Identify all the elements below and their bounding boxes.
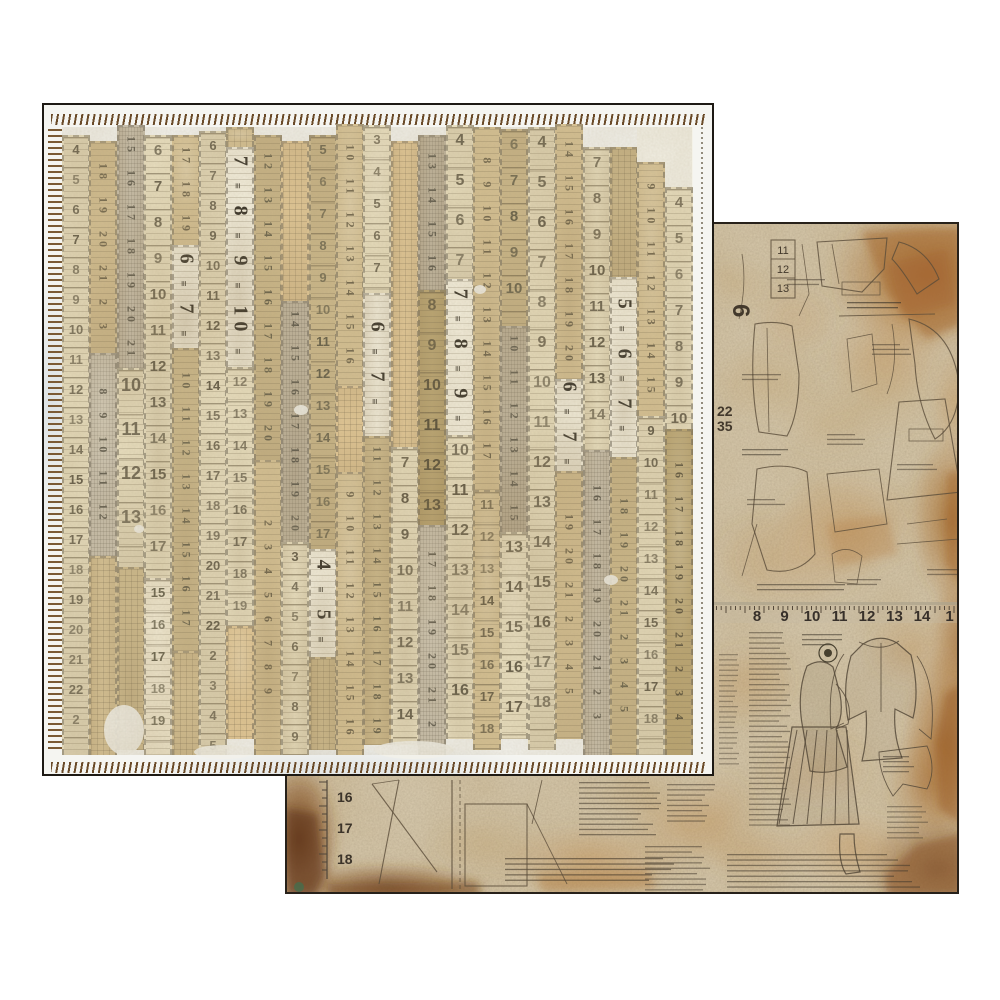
svg-text:11: 11 <box>777 245 788 257</box>
svg-text:6: 6 <box>727 304 754 317</box>
svg-text:11: 11 <box>832 608 848 625</box>
svg-text:18: 18 <box>337 851 353 867</box>
svg-text:1: 1 <box>945 608 953 625</box>
svg-text:16: 16 <box>337 789 353 805</box>
svg-text:10: 10 <box>804 608 821 625</box>
svg-text:14: 14 <box>914 608 931 625</box>
svg-text:22: 22 <box>717 403 733 419</box>
svg-text:35: 35 <box>717 418 733 434</box>
svg-text:12: 12 <box>777 264 789 276</box>
svg-text:9: 9 <box>780 608 788 625</box>
svg-text:12: 12 <box>859 608 876 625</box>
svg-text:13: 13 <box>886 608 903 625</box>
svg-text:17: 17 <box>337 820 353 836</box>
svg-text:8: 8 <box>753 608 761 625</box>
